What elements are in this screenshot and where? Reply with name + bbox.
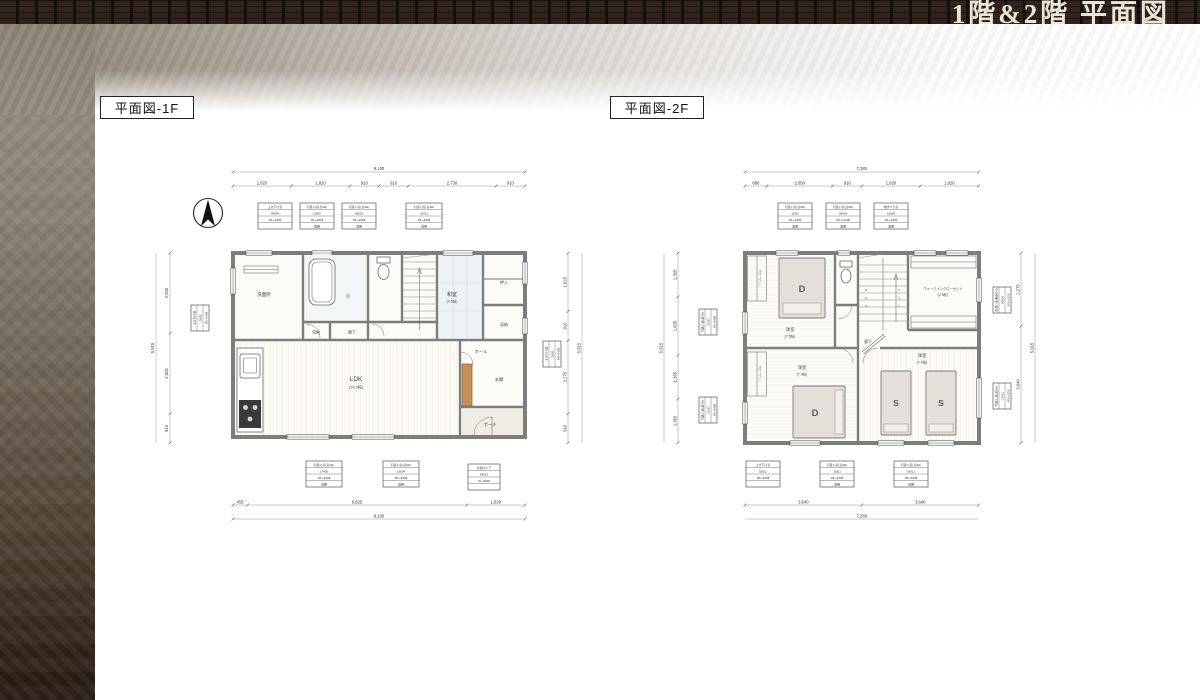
page: 1階&2階 平面図 平面図-1F 平面図-2F 9,100 (0, 0, 1200, 700)
svg-text:9PL+1150: 9PL+1150 (1007, 293, 1011, 306)
room-label: 収納 (500, 321, 508, 327)
svg-text:引違い窓(窓SH): 引違い窓(窓SH) (700, 312, 705, 332)
svg-text:IPL+9408: IPL+9408 (269, 218, 282, 222)
svg-text:16004: 16004 (397, 469, 405, 473)
floor-plan-2f: 7,280 680 2,050 910 1,820 1,820 3,640 3,… (650, 150, 1050, 540)
room-label: 廊下 (348, 330, 356, 335)
svg-text:16011: 16011 (420, 211, 428, 215)
tatami-floor (439, 255, 481, 338)
svg-text:透明: 透明 (356, 223, 362, 228)
svg-text:クローゼット: クローゼット (758, 270, 762, 287)
dim-label: 910 (164, 424, 169, 432)
svg-text:引違い窓(窓SH): 引違い窓(窓SH) (901, 462, 921, 467)
window-spec-table: 引違い窓(窓SH) 11011 IPL+9408 (699, 397, 717, 423)
dim-label: 1,820 (944, 180, 955, 185)
bed-single-1: S (881, 371, 911, 435)
svg-text:16011: 16011 (707, 318, 711, 326)
svg-text:引違い窓(窓SH): 引違い窓(窓SH) (414, 204, 434, 209)
stair-number: 12 (864, 296, 868, 300)
dim-label: 1,365 (673, 269, 678, 280)
window-spec-table: 引違い窓(窓SH) 16011 IPL+9408 透明 (894, 461, 928, 487)
window-spec-table: 引違い窓(窓SH) 16004 IPL+9408 透明 (383, 461, 419, 487)
left-wallpaper (0, 115, 95, 700)
svg-text:06009: 06009 (271, 211, 279, 215)
dim-label: 910 (390, 180, 398, 185)
svg-text:11911: 11911 (833, 469, 841, 473)
svg-text:06009: 06009 (839, 211, 847, 215)
svg-text:片開きドア: 片開きドア (477, 465, 492, 470)
dim-label: 910 (507, 180, 515, 185)
svg-text:IPL+9408: IPL+9408 (757, 476, 770, 480)
room-label: 収納 (312, 330, 320, 335)
svg-text:IPL+9408: IPL+9408 (885, 218, 898, 222)
page-title: 1階&2階 平面図 (952, 0, 1170, 24)
svg-text:IPL+9408: IPL+9408 (713, 315, 717, 328)
room-label: 洗面所 (257, 291, 271, 298)
room-label: (7.5帖) (785, 334, 796, 339)
svg-text:引違い窓(窓SH): 引違い窓(窓SH) (994, 386, 999, 406)
bed-double-1: D (779, 258, 825, 318)
window-spec-table: 引違い窓(窓SH) 11911 IPL+9408 透明 (778, 203, 812, 229)
dim-label: 3,640 (1016, 378, 1021, 389)
dim-label: 5,915 (577, 342, 582, 353)
room-label: 玄関 (495, 376, 503, 383)
window-spec-table: 引違い窓(窓SH) 16011 IPL+9408 (699, 309, 717, 335)
room-label: 押入 (500, 279, 508, 285)
dim-label: 1,820 (491, 499, 502, 504)
window-spec-table: 引違い窓(窓SH) 17405 IPL+9408 透明 (306, 461, 342, 487)
window-spec-table: 引違い窓(窓SH) 11911 IPL+9408 透明 (820, 461, 854, 487)
dim-label: 680 (752, 180, 760, 185)
svg-text:透明: 透明 (314, 223, 320, 228)
plan-2f-title: 平面図-2F (625, 98, 690, 117)
svg-text:11911: 11911 (791, 211, 799, 215)
window-spec-tables-1f-bottom: 引違い窓(窓SH) 17405 IPL+9408 透明 引違い窓(窓SH) 16… (306, 461, 500, 490)
room-label: 洋室 (918, 352, 927, 359)
svg-text:02611: 02611 (759, 469, 767, 473)
dim-label: 455 (237, 499, 245, 504)
svg-text:06903: 06903 (1001, 296, 1005, 304)
room-label: ポーチ (484, 421, 497, 427)
svg-text:16011: 16011 (907, 469, 915, 473)
stove-icon (239, 400, 261, 428)
svg-text:引違い窓(窓SH): 引違い窓(窓SH) (700, 400, 705, 420)
shoe-cabinet (462, 364, 472, 406)
compass-icon (194, 199, 223, 228)
svg-text:0609: 0609 (551, 350, 555, 357)
dim-label: 910 (844, 180, 852, 185)
svg-text:引違い窓(窓SH): 引違い窓(窓SH) (349, 204, 369, 209)
dim-label: 2,275 (563, 371, 568, 382)
dim-label: 5,915 (659, 342, 664, 353)
toilet-icon-2f (840, 261, 852, 283)
dim-label: 910 (563, 322, 568, 330)
svg-text:S: S (938, 398, 944, 408)
window-spec-table: 引違い窓(断熱SH) 06903 9PL+1150 (993, 287, 1011, 313)
bed-double-2: D (793, 386, 845, 438)
dim-label: 5,915 (150, 342, 155, 353)
window-spec-table: 引違い窓(窓SH) 11405 IPL+9408 透明 (300, 203, 334, 229)
svg-text:4PL+1150: 4PL+1150 (1007, 389, 1011, 402)
room-label: LDK (350, 376, 363, 383)
svg-text:16009: 16009 (887, 211, 895, 215)
room-label: (7.4帖) (797, 372, 808, 377)
svg-text:引違い窓(窓SH): 引違い窓(窓SH) (391, 462, 411, 467)
top-banner: 1階&2階 平面図 (0, 0, 1200, 24)
room-label: (7.7帖) (917, 360, 928, 365)
dim-label: 1,820 (563, 276, 568, 287)
window-spec-table: 上げ下げ窓 06009 IPL+9408 (258, 203, 292, 229)
svg-text:透明: 透明 (834, 481, 840, 486)
room-label: ウォークインクローゼット (923, 286, 963, 291)
dim-label: 1,365 (673, 371, 678, 382)
dim-label: 1,820 (886, 180, 897, 185)
room-label: 和室 (447, 291, 457, 298)
svg-text:IPL+9408: IPL+9408 (418, 218, 431, 222)
window-spec-table: 上げ下げ窓 0609 IPL+9408 (543, 341, 561, 367)
room-label: ホール (475, 349, 488, 354)
kitchen-sink (240, 354, 260, 378)
room-label: 洋室 (786, 326, 795, 333)
window-spec-table: 上げ下げ窓 0609 IPL+9408 (191, 305, 209, 331)
window-spec-table: 引違い窓(窓SH) 11611 4PL+1150 (993, 383, 1011, 409)
svg-text:引違い窓(窓SH): 引違い窓(窓SH) (785, 204, 805, 209)
dim-label: 6,825 (352, 499, 363, 504)
svg-text:透明: 透明 (840, 223, 846, 228)
svg-text:引違い窓(窓SH): 引違い窓(窓SH) (307, 204, 327, 209)
room-label: 廊下 (864, 339, 872, 344)
header-gradient-left (0, 24, 95, 115)
window-spec-tables-2f-top: 引違い窓(窓SH) 11911 IPL+9408 透明 引違い窓(窓SH) 06… (778, 203, 908, 229)
plan-1f-title: 平面図-1F (115, 98, 180, 117)
dim-label: 2,505 (164, 368, 169, 379)
plan-1f-body: 洗面所 収納 廊下 和室 (4.5帖) 押入 収納 LDK (14.0帖) ホー… (231, 251, 527, 439)
window-spec-table: 片開きドア 08023 (7L-4000) (468, 464, 500, 490)
dim-label: 3,640 (915, 499, 926, 504)
window-spec-table: 縦すべり窓 16009 IPL+9408 透明 (874, 203, 908, 229)
svg-text:S: S (893, 398, 899, 408)
ldk-floor (235, 342, 458, 435)
dim-label: 2,275 (1016, 284, 1021, 295)
window-spec-tables-1f-top: 上げ下げ窓 06009 IPL+9408 引違い窓(窓SH) 11405 IPL… (258, 203, 442, 229)
svg-text:IPL+9408: IPL+9408 (713, 403, 717, 416)
toilet-icon (377, 257, 390, 280)
room-label: (2.5帖) (938, 292, 948, 297)
svg-text:引違い窓(窓SH): 引違い窓(窓SH) (833, 204, 853, 209)
svg-text:11405: 11405 (313, 211, 321, 215)
svg-text:(7L-4000): (7L-4000) (478, 479, 491, 483)
window-spec-table: 引違い窓(窓SH) 16011 IPL+9408 透明 (406, 203, 442, 229)
dim-label: 2,500 (164, 287, 169, 298)
svg-text:11011: 11011 (707, 406, 711, 414)
window-spec-table: 上げ下げ窓 02611 IPL+9408 (746, 461, 780, 487)
svg-text:17405: 17405 (320, 469, 328, 473)
floor-plan-1f: 9,100 1,820 1,820 910 910 2,730 910 455 … (140, 150, 620, 540)
svg-text:透明: 透明 (908, 481, 914, 486)
svg-text:0609: 0609 (199, 314, 203, 321)
svg-text:06003: 06003 (355, 211, 363, 215)
svg-text:透明: 透明 (321, 481, 327, 486)
svg-text:11611: 11611 (1001, 392, 1005, 400)
svg-text:透明: 透明 (792, 223, 798, 228)
svg-text:上げ下げ窓: 上げ下げ窓 (544, 347, 549, 362)
dim-label: 7,280 (857, 166, 868, 171)
svg-text:08023: 08023 (480, 472, 488, 476)
svg-text:引違い窓(窓SH): 引違い窓(窓SH) (314, 462, 334, 467)
svg-text:透明: 透明 (421, 223, 427, 228)
kitchen-counter (237, 348, 263, 432)
svg-text:透明: 透明 (398, 481, 404, 486)
svg-text:D: D (812, 408, 819, 419)
dim-label: 910 (361, 180, 369, 185)
dim-label: 910 (563, 424, 568, 432)
dim-label: 5,915 (1030, 342, 1035, 353)
plan-1f-title-box: 平面図-1F (100, 96, 194, 119)
dim-label: 9,100 (374, 513, 385, 518)
dim-label: 2,730 (447, 180, 458, 185)
svg-text:引違い窓(断熱SH): 引違い窓(断熱SH) (994, 288, 999, 311)
room-label: 洋室 (798, 364, 807, 371)
dim-label: 1,820 (257, 180, 268, 185)
svg-text:IPL+9408: IPL+9408 (318, 476, 331, 480)
svg-text:IPL+9408: IPL+9408 (831, 476, 844, 480)
plan-2f-title-box: 平面図-2F (610, 96, 704, 119)
bathtub-icon (305, 255, 366, 320)
room-label: (14.0帖) (349, 384, 364, 390)
svg-text:IPL+9408: IPL+9408 (557, 347, 561, 360)
svg-text:縦すべり窓: 縦すべり窓 (884, 204, 898, 209)
svg-text:IPL+11408: IPL+11408 (836, 218, 850, 222)
svg-text:透明: 透明 (888, 223, 894, 228)
svg-text:IPL+9408: IPL+9408 (789, 218, 802, 222)
svg-text:IPL+9408: IPL+9408 (395, 476, 408, 480)
stair-number: 11 (865, 288, 868, 292)
svg-text:D: D (799, 284, 806, 295)
svg-text:クローゼット: クローゼット (758, 366, 762, 383)
room-label: (4.5帖) (447, 299, 458, 304)
svg-text:IPL+9408: IPL+9408 (353, 218, 366, 222)
dim-label: 7,280 (857, 513, 868, 518)
dim-label: 1,365 (673, 415, 678, 426)
dim-label: 1,820 (315, 180, 326, 185)
bed-single-2: S (926, 371, 956, 435)
dim-label: 1,820 (673, 320, 678, 331)
window-spec-table: 引違い窓(窓SH) 06009 IPL+11408 透明 (826, 203, 860, 229)
dim-label: 9,100 (374, 166, 385, 171)
svg-text:IPL+9408: IPL+9408 (905, 476, 918, 480)
svg-text:上げ下げ窓: 上げ下げ窓 (268, 204, 283, 209)
svg-text:IPL+9408: IPL+9408 (311, 218, 324, 222)
window-spec-tables-2f-bottom: 上げ下げ窓 02611 IPL+9408 引違い窓(窓SH) 11911 IPL… (746, 461, 928, 487)
svg-text:上げ下げ窓: 上げ下げ窓 (756, 462, 771, 467)
dim-label: 3,640 (798, 499, 809, 504)
stair-number: 13 (864, 304, 868, 308)
svg-text:上げ下げ窓: 上げ下げ窓 (192, 311, 197, 326)
svg-text:引違い窓(窓SH): 引違い窓(窓SH) (827, 462, 847, 467)
svg-text:IPL+9408: IPL+9408 (205, 311, 209, 324)
window-spec-table: 引違い窓(窓SH) 06003 IPL+9408 透明 (342, 203, 376, 229)
dim-label: 2,050 (794, 180, 805, 185)
plan-2f-body: クローゼット クローゼット ウォークインクローゼット (2.5帖) (743, 251, 981, 445)
